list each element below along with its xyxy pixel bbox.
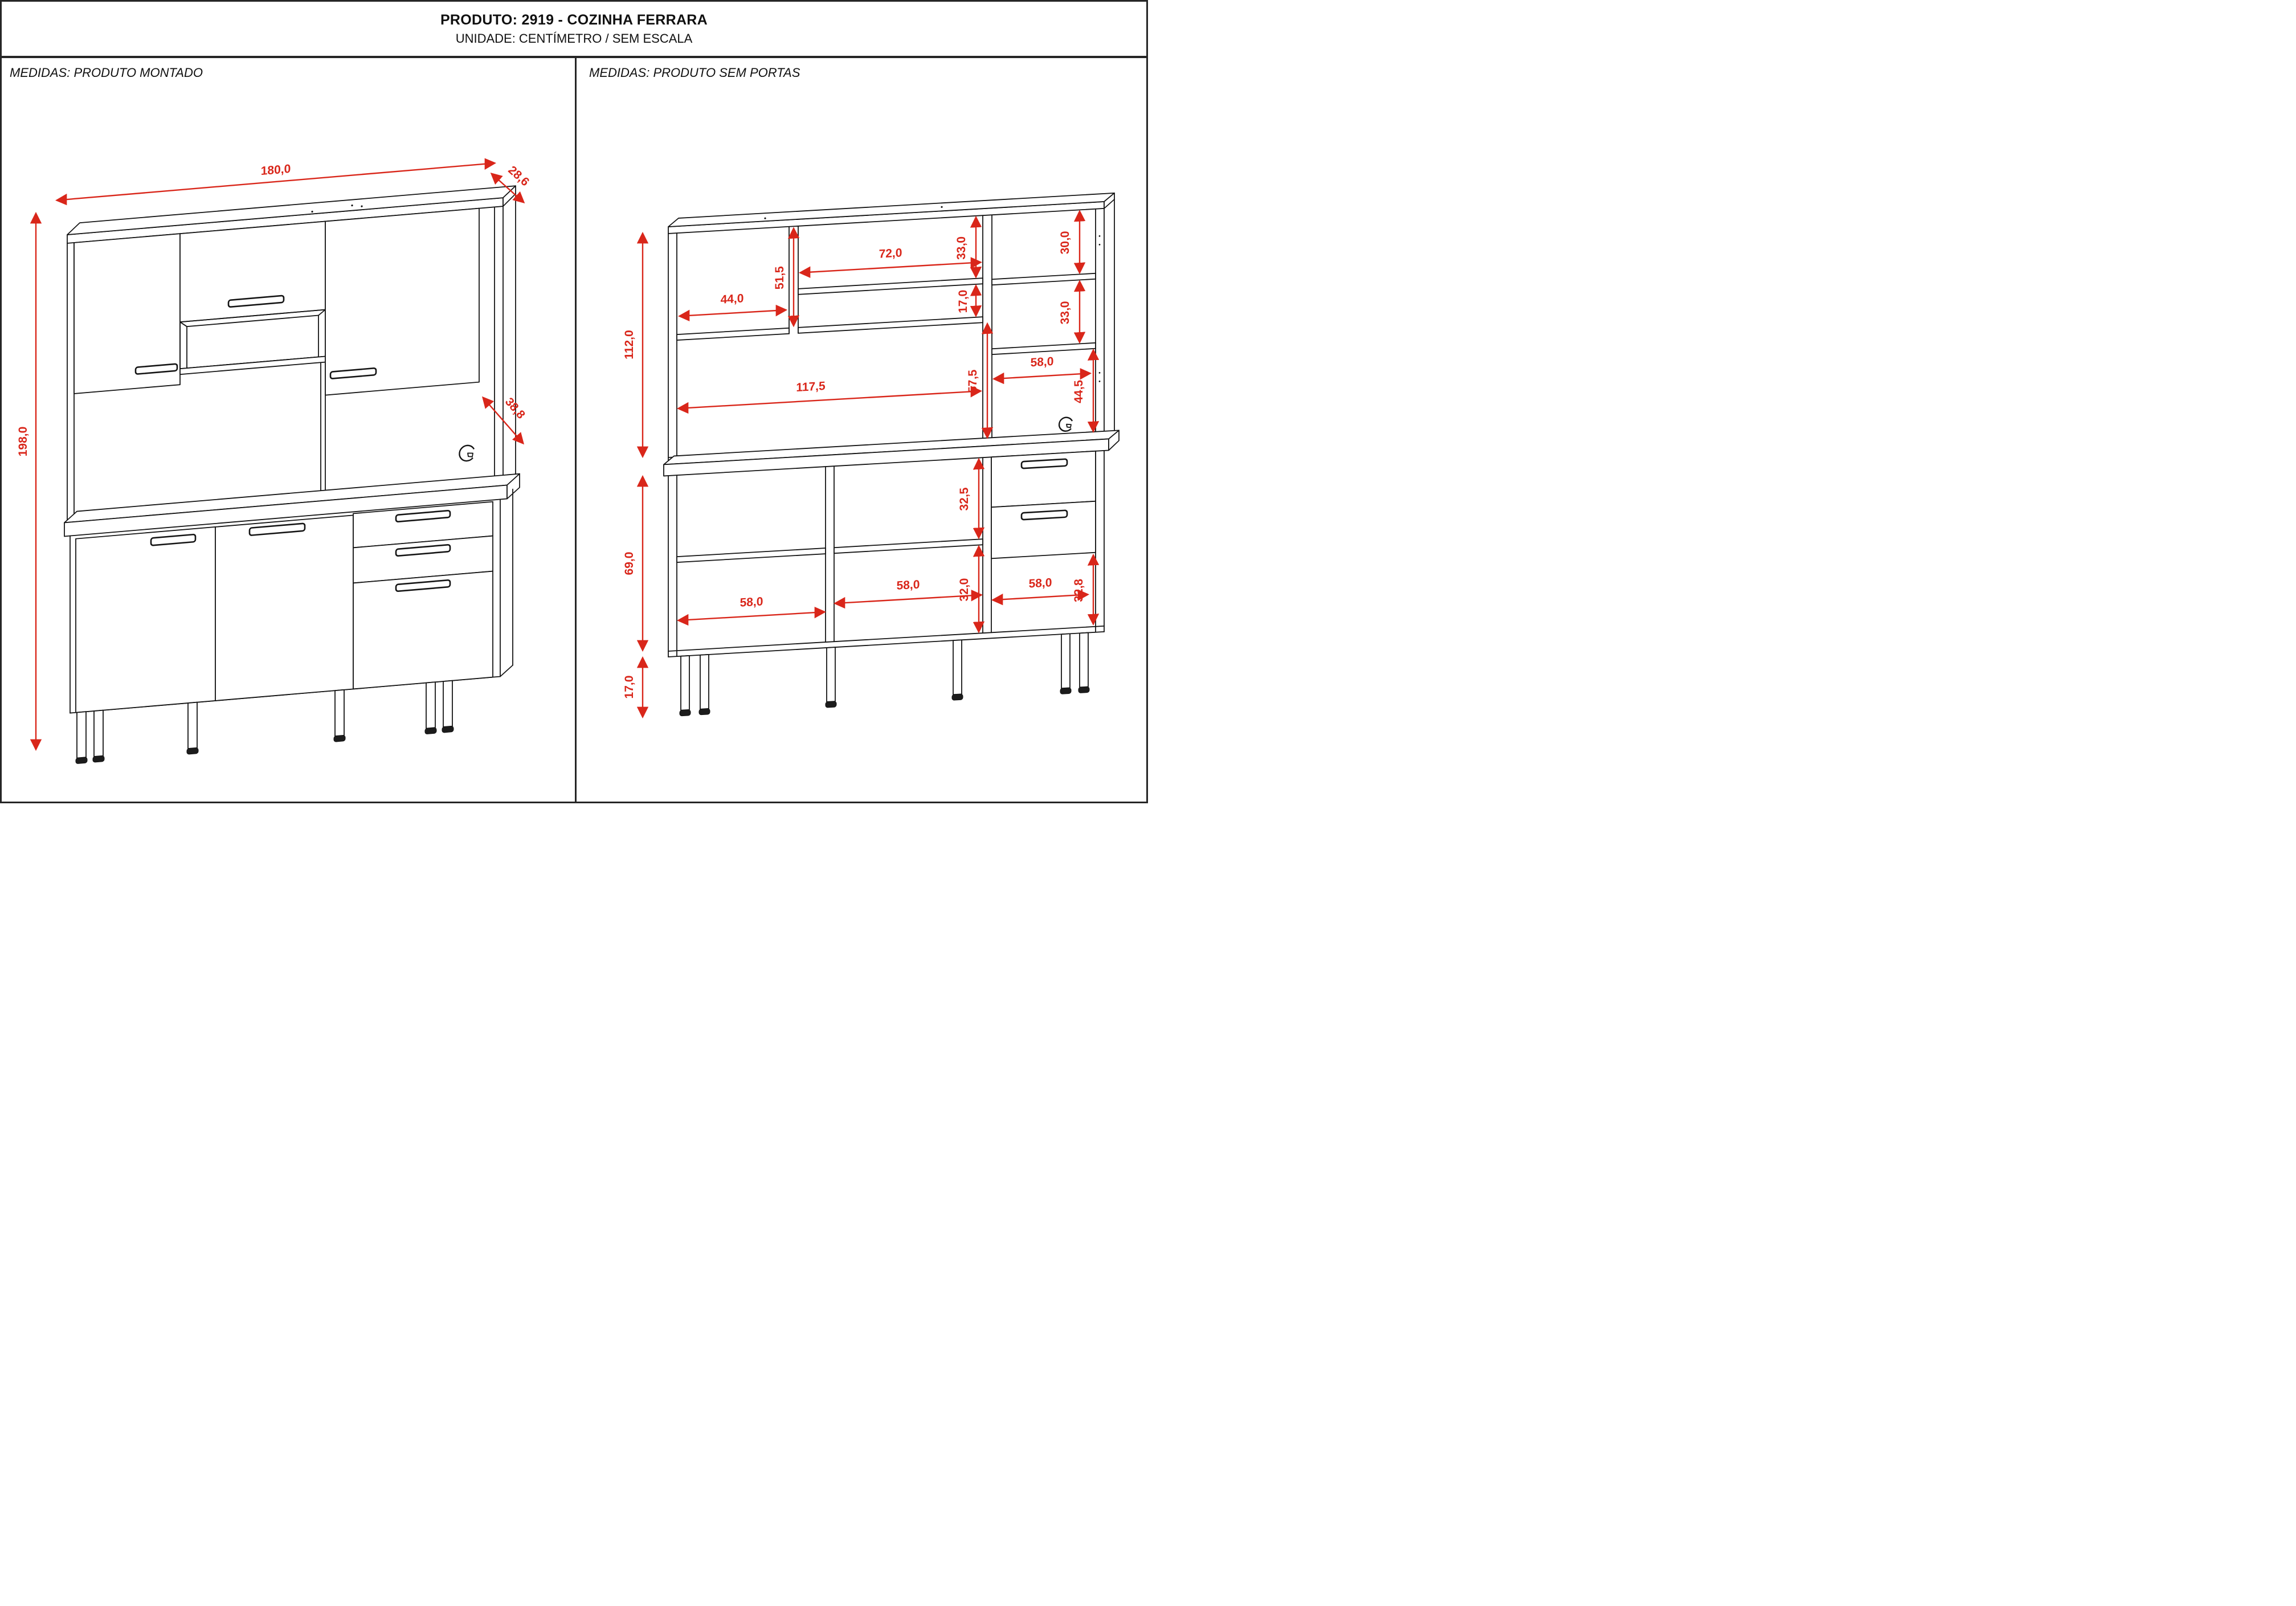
dim-right-top-height: 30,0 — [1059, 211, 1080, 273]
svg-text:32,5: 32,5 — [958, 487, 971, 511]
hutch-carcass — [668, 199, 1114, 464]
svg-text:33,0: 33,0 — [955, 236, 968, 260]
svg-text:117,5: 117,5 — [796, 379, 826, 394]
dim-hutch-right-open-width: 58,0 — [994, 353, 1090, 379]
dim-base-upper-height: 32,5 — [958, 460, 979, 539]
dim-label-height: 198,0 — [17, 427, 30, 457]
brand-mark — [1059, 417, 1072, 431]
dim-label-width: 180,0 — [261, 162, 291, 178]
svg-text:58,0: 58,0 — [1029, 576, 1052, 590]
svg-text:112,0: 112,0 — [623, 330, 636, 359]
hutch-middle-door — [180, 222, 325, 322]
hutch-top-panel — [668, 193, 1114, 234]
dim-leg-height: 17,0 — [623, 658, 643, 717]
carcass-drawing: 44,0 51,5 72,0 33,0 17,0 — [623, 193, 1119, 717]
drawer-1 — [991, 451, 1096, 508]
dim-base-right-open-height: 32,8 — [1072, 555, 1093, 625]
dim-label-base-depth: 38,8 — [502, 395, 528, 422]
shelf — [677, 548, 826, 562]
dim-middle-gap-height: 17,0 — [957, 286, 976, 317]
svg-text:30,0: 30,0 — [1059, 231, 1072, 255]
svg-text:17,0: 17,0 — [957, 289, 970, 313]
dim-middle-top-height: 33,0 — [955, 218, 976, 278]
svg-text:58,0: 58,0 — [740, 595, 763, 609]
dim-center-open-height: 57,5 — [966, 324, 987, 439]
assembled-product-drawing: 180,0 198,0 28,6 38,8 — [17, 143, 532, 766]
svg-text:44,0: 44,0 — [721, 292, 744, 306]
shelf — [798, 278, 983, 295]
dim-hutch-right-open-height: 44,5 — [1072, 350, 1093, 432]
shelf — [798, 317, 983, 333]
base-middle-door — [215, 515, 353, 701]
hutch-right-door — [325, 209, 479, 395]
dim-hutch-height: 112,0 — [623, 234, 643, 456]
brand-mark — [459, 445, 474, 461]
drawer-2 — [991, 501, 1096, 559]
niche-shelf — [180, 357, 325, 375]
base-left-door — [76, 527, 215, 713]
hutch-left-door — [74, 234, 180, 394]
dim-right-middle-height: 33,0 — [1059, 281, 1080, 343]
dim-left-compartment-width: 44,0 — [680, 289, 786, 316]
dim-assembled-width: 180,0 — [57, 145, 495, 200]
dim-assembled-height: 198,0 — [17, 214, 36, 749]
svg-text:57,5: 57,5 — [966, 369, 979, 393]
base-drawer-stack — [991, 451, 1096, 559]
dim-base-lower-height: 32,0 — [958, 547, 979, 633]
shelf — [677, 328, 789, 340]
svg-text:32,0: 32,0 — [958, 578, 971, 602]
shelf — [992, 343, 1096, 354]
technical-drawing-sheet: PRODUTO: 2919 - COZINHA FERRARA UNIDADE:… — [0, 0, 1148, 803]
dim-label-top-depth: 28,6 — [505, 164, 532, 189]
svg-text:72,0: 72,0 — [879, 246, 902, 260]
legs — [680, 632, 1089, 716]
svg-text:33,0: 33,0 — [1059, 301, 1072, 325]
dim-left-compartment-height: 51,5 — [773, 228, 794, 326]
svg-text:44,5: 44,5 — [1072, 379, 1085, 403]
svg-text:58,0: 58,0 — [1031, 355, 1054, 369]
dim-base-depth: 38,8 — [483, 395, 528, 443]
dim-base-height: 69,0 — [623, 477, 643, 650]
base-drawer-stack — [353, 502, 493, 689]
dim-base-left-width: 58,0 — [679, 591, 824, 620]
dim-center-open-width: 117,5 — [679, 370, 981, 408]
svg-text:58,0: 58,0 — [897, 578, 920, 592]
shelf — [834, 539, 983, 553]
svg-text:69,0: 69,0 — [623, 552, 636, 575]
cabinet-drawings: 180,0 198,0 28,6 38,8 — [2, 2, 1148, 803]
svg-text:51,5: 51,5 — [773, 265, 786, 289]
svg-text:32,8: 32,8 — [1072, 578, 1085, 602]
svg-text:17,0: 17,0 — [623, 676, 636, 699]
dim-middle-width: 72,0 — [800, 242, 981, 272]
